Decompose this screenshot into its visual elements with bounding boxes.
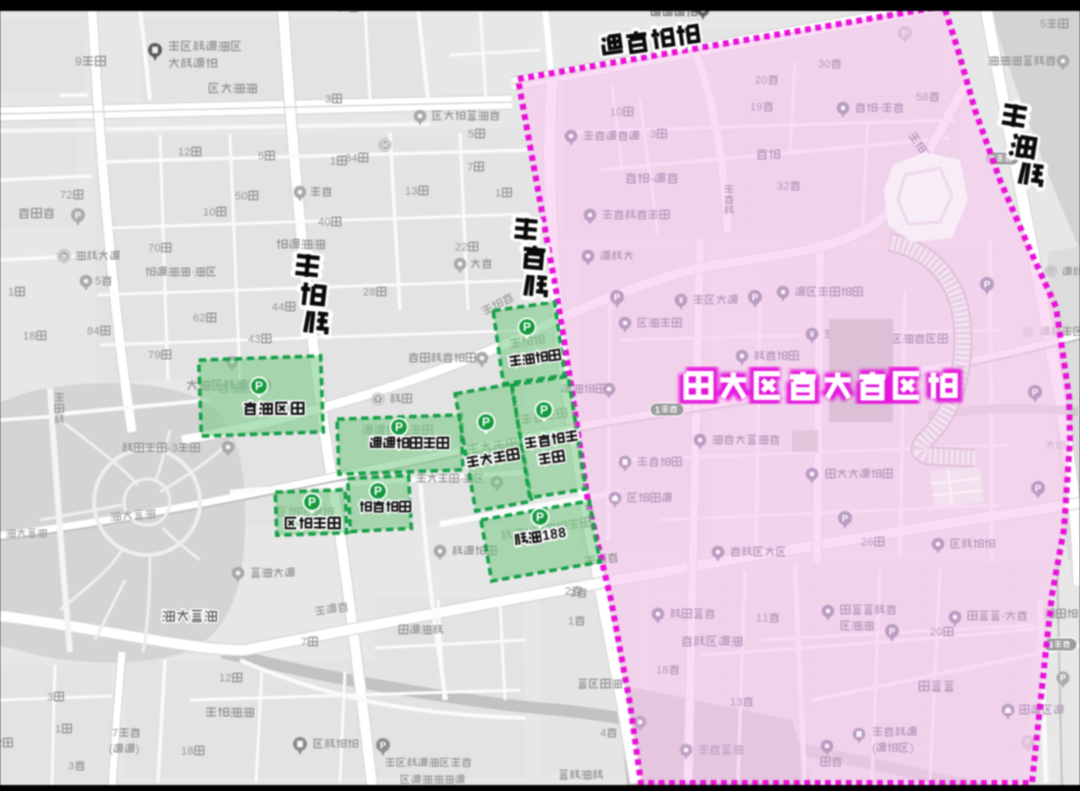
svg-text:8: 8: [662, 665, 668, 677]
svg-text:3: 3: [818, 59, 824, 71]
svg-text:8: 8: [922, 92, 928, 104]
svg-text:5: 5: [235, 191, 241, 203]
svg-text:3: 3: [736, 697, 742, 709]
svg-text:2: 2: [0, 738, 2, 750]
svg-text:(: (: [109, 744, 113, 756]
svg-text:2: 2: [570, 588, 576, 600]
svg-text:3: 3: [254, 334, 260, 346]
svg-text:2: 2: [783, 181, 789, 193]
svg-text:9: 9: [154, 350, 160, 362]
svg-text:7: 7: [148, 350, 154, 362]
svg-text:0: 0: [241, 191, 247, 203]
svg-text:8: 8: [87, 326, 93, 338]
svg-text:0: 0: [324, 217, 330, 229]
svg-text:4: 4: [272, 302, 278, 314]
svg-text:7: 7: [60, 190, 66, 202]
svg-text:8: 8: [29, 331, 35, 343]
svg-text:8: 8: [187, 746, 193, 758]
svg-text:2: 2: [199, 313, 205, 325]
svg-text:5: 5: [468, 129, 474, 141]
svg-text:2: 2: [184, 147, 190, 159]
svg-text:P: P: [75, 210, 82, 221]
svg-text:0: 0: [616, 107, 622, 119]
svg-text:P: P: [482, 415, 490, 429]
svg-text:1: 1: [656, 665, 662, 677]
svg-text:P: P: [536, 510, 544, 524]
svg-text:1: 1: [610, 107, 616, 119]
svg-text:): ): [136, 744, 140, 756]
svg-text:1: 1: [219, 673, 225, 685]
svg-text:P: P: [889, 626, 896, 637]
svg-text:1: 1: [55, 724, 61, 736]
svg-text:2: 2: [66, 190, 72, 202]
svg-text:4: 4: [351, 153, 357, 165]
svg-text:1: 1: [730, 697, 736, 709]
svg-text:P: P: [614, 292, 621, 303]
svg-text:1: 1: [23, 331, 29, 343]
svg-text:4: 4: [93, 326, 99, 338]
svg-text:9: 9: [75, 54, 82, 68]
svg-text:1: 1: [181, 746, 187, 758]
svg-text:P: P: [984, 279, 991, 290]
svg-text:3: 3: [650, 129, 656, 141]
svg-text:2: 2: [930, 627, 936, 639]
svg-text:-: -: [878, 103, 882, 115]
svg-text:1: 1: [8, 287, 14, 299]
svg-text:P: P: [255, 379, 263, 393]
svg-text:P: P: [752, 292, 759, 303]
svg-text:0: 0: [824, 59, 830, 71]
svg-text:Y: Y: [376, 395, 381, 404]
svg-text:P: P: [1032, 387, 1039, 398]
svg-text:3: 3: [68, 761, 74, 773]
svg-text:-: -: [460, 473, 464, 485]
svg-text:2: 2: [225, 673, 231, 685]
svg-text:1: 1: [756, 613, 762, 625]
svg-text:P: P: [540, 403, 548, 417]
svg-text:1: 1: [495, 188, 501, 200]
svg-text:0: 0: [936, 627, 942, 639]
svg-text:3: 3: [47, 692, 53, 704]
svg-text:7: 7: [148, 243, 154, 255]
svg-text:6: 6: [193, 313, 199, 325]
svg-text:3: 3: [172, 443, 178, 455]
svg-text:¥: ¥: [810, 330, 815, 339]
svg-text:P: P: [380, 740, 387, 751]
svg-text:1: 1: [330, 156, 336, 168]
svg-text:0: 0: [209, 207, 215, 219]
svg-text:2: 2: [363, 287, 369, 299]
svg-text:1: 1: [405, 186, 411, 198]
svg-text:): ): [910, 743, 914, 755]
svg-text:1: 1: [762, 613, 768, 625]
svg-text:¥: ¥: [679, 296, 684, 305]
svg-text:3: 3: [777, 181, 783, 193]
svg-text:9: 9: [756, 102, 762, 114]
svg-text:8: 8: [369, 287, 375, 299]
svg-text:0: 0: [761, 75, 767, 87]
svg-text:·: ·: [191, 267, 195, 279]
svg-text:1: 1: [655, 405, 660, 415]
svg-text:P: P: [395, 420, 403, 434]
svg-text:0: 0: [154, 243, 160, 255]
svg-text:7: 7: [301, 637, 307, 649]
svg-text:5: 5: [95, 276, 101, 288]
svg-text:(: (: [872, 743, 876, 755]
svg-text:6: 6: [867, 537, 873, 549]
svg-text:M: M: [382, 141, 388, 150]
svg-text:P: P: [1060, 673, 1066, 683]
svg-text:4: 4: [278, 302, 284, 314]
svg-text:4: 4: [600, 728, 606, 740]
svg-text:3: 3: [411, 186, 417, 198]
svg-text:7: 7: [467, 162, 473, 174]
svg-text:4: 4: [248, 334, 254, 346]
svg-text:2: 2: [755, 75, 761, 87]
svg-text:P: P: [842, 513, 849, 524]
svg-text:5: 5: [916, 92, 922, 104]
svg-text:1: 1: [568, 616, 574, 628]
svg-text:2: 2: [455, 242, 461, 254]
svg-text:P: P: [308, 495, 316, 509]
svg-text:-: -: [1001, 611, 1005, 623]
svg-text:5: 5: [258, 151, 264, 163]
svg-text:P: P: [374, 484, 382, 498]
svg-text:P: P: [1035, 483, 1042, 494]
svg-text:2: 2: [861, 537, 867, 549]
svg-text:P: P: [523, 320, 531, 334]
svg-text:1: 1: [750, 102, 756, 114]
svg-text:1: 1: [178, 147, 184, 159]
svg-text:B: B: [61, 252, 67, 261]
svg-text:4: 4: [318, 217, 324, 229]
svg-text:O: O: [1049, 268, 1054, 275]
svg-text:-: -: [650, 171, 654, 185]
svg-text:5: 5: [1040, 19, 1046, 31]
svg-text:3: 3: [325, 94, 331, 106]
svg-text:1: 1: [203, 207, 209, 219]
svg-text:2: 2: [461, 242, 467, 254]
svg-text:3: 3: [345, 153, 351, 165]
svg-text:7: 7: [112, 728, 118, 740]
